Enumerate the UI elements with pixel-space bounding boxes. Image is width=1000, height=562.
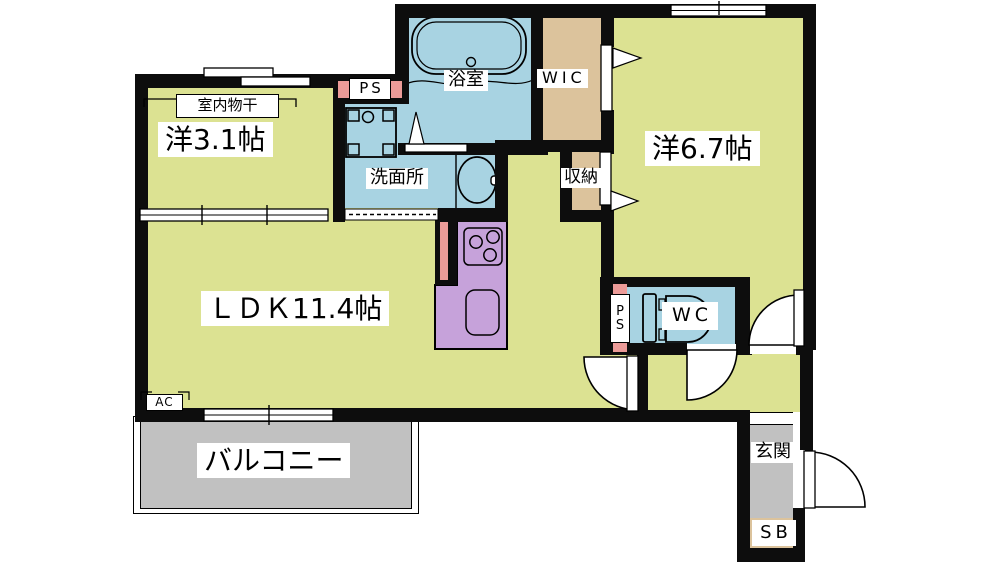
bedroom1-window bbox=[204, 68, 310, 86]
bedroom1-sliding-door bbox=[140, 205, 328, 225]
balcony-label: バルコニー bbox=[197, 443, 350, 478]
floorplan: 室内物干 洋3.1帖 PS 浴室 WIC 洋6.7帖 洗面所 収納 ＬＤＫ11.… bbox=[0, 0, 1000, 562]
bathroom-door-leaf bbox=[405, 144, 467, 152]
closet-door-triangle bbox=[611, 191, 638, 211]
ac-label: AC bbox=[146, 394, 183, 411]
bathroom-text: 浴室 bbox=[448, 71, 484, 90]
ps-wc-p-text: P bbox=[616, 305, 624, 319]
wic-text: WIC bbox=[542, 70, 586, 87]
bedroom1-text: 洋3.1帖 bbox=[165, 125, 266, 154]
wc-door-swing bbox=[687, 350, 737, 400]
ldk-hall-door-leaf bbox=[627, 356, 638, 411]
bathroom-label: 浴室 bbox=[444, 70, 488, 91]
shoebox-text: SB bbox=[760, 524, 792, 543]
washroom-opening-dashed bbox=[345, 209, 438, 220]
closet-label: 収納 bbox=[561, 168, 601, 188]
wic-label: WIC bbox=[537, 69, 588, 88]
washroom-text: 洗面所 bbox=[370, 169, 424, 188]
wc-text: WC bbox=[672, 306, 712, 326]
bedroom2-door-leaf bbox=[794, 290, 804, 346]
balcony-text: バルコニー bbox=[204, 446, 343, 475]
shoebox-label: SB bbox=[752, 520, 796, 546]
indoor-drying-text: 室内物干 bbox=[197, 98, 257, 114]
ldk-label: ＬＤＫ11.4帖 bbox=[201, 291, 389, 326]
bedroom2-label: 洋6.7帖 bbox=[645, 131, 760, 166]
ps-top-label: PS bbox=[349, 78, 391, 100]
entrance-door-swing bbox=[810, 452, 865, 507]
wic-door-triangle bbox=[613, 48, 641, 68]
entrance-label: 玄関 bbox=[751, 442, 795, 463]
doors-windows-layer bbox=[0, 0, 1000, 562]
balcony-sliding-door bbox=[204, 405, 333, 425]
closet-door-leaf bbox=[600, 152, 611, 205]
wc-label: WC bbox=[662, 302, 718, 330]
bedroom2-text: 洋6.7帖 bbox=[652, 134, 753, 163]
entrance-door-leaf bbox=[804, 451, 815, 508]
bedroom2-window bbox=[671, 1, 766, 16]
ps-top-text: PS bbox=[359, 81, 384, 97]
ldk-size-text: 11.4帖 bbox=[292, 294, 382, 323]
wic-door-leaf bbox=[601, 45, 612, 111]
bathroom-door-triangle bbox=[409, 112, 424, 144]
ldk-prefix-text: ＬＤＫ bbox=[208, 294, 292, 323]
bedroom1-label: 洋3.1帖 bbox=[158, 122, 273, 157]
washroom-label: 洗面所 bbox=[366, 168, 428, 189]
entrance-text: 玄関 bbox=[755, 443, 791, 462]
bedroom2-door-swing bbox=[749, 295, 799, 345]
ps-wc-label: P S bbox=[610, 294, 630, 343]
ac-text: AC bbox=[155, 396, 173, 409]
indoor-drying-label: 室内物干 bbox=[176, 94, 279, 118]
closet-text: 収納 bbox=[564, 169, 598, 187]
ps-wc-s-text: S bbox=[616, 319, 624, 333]
